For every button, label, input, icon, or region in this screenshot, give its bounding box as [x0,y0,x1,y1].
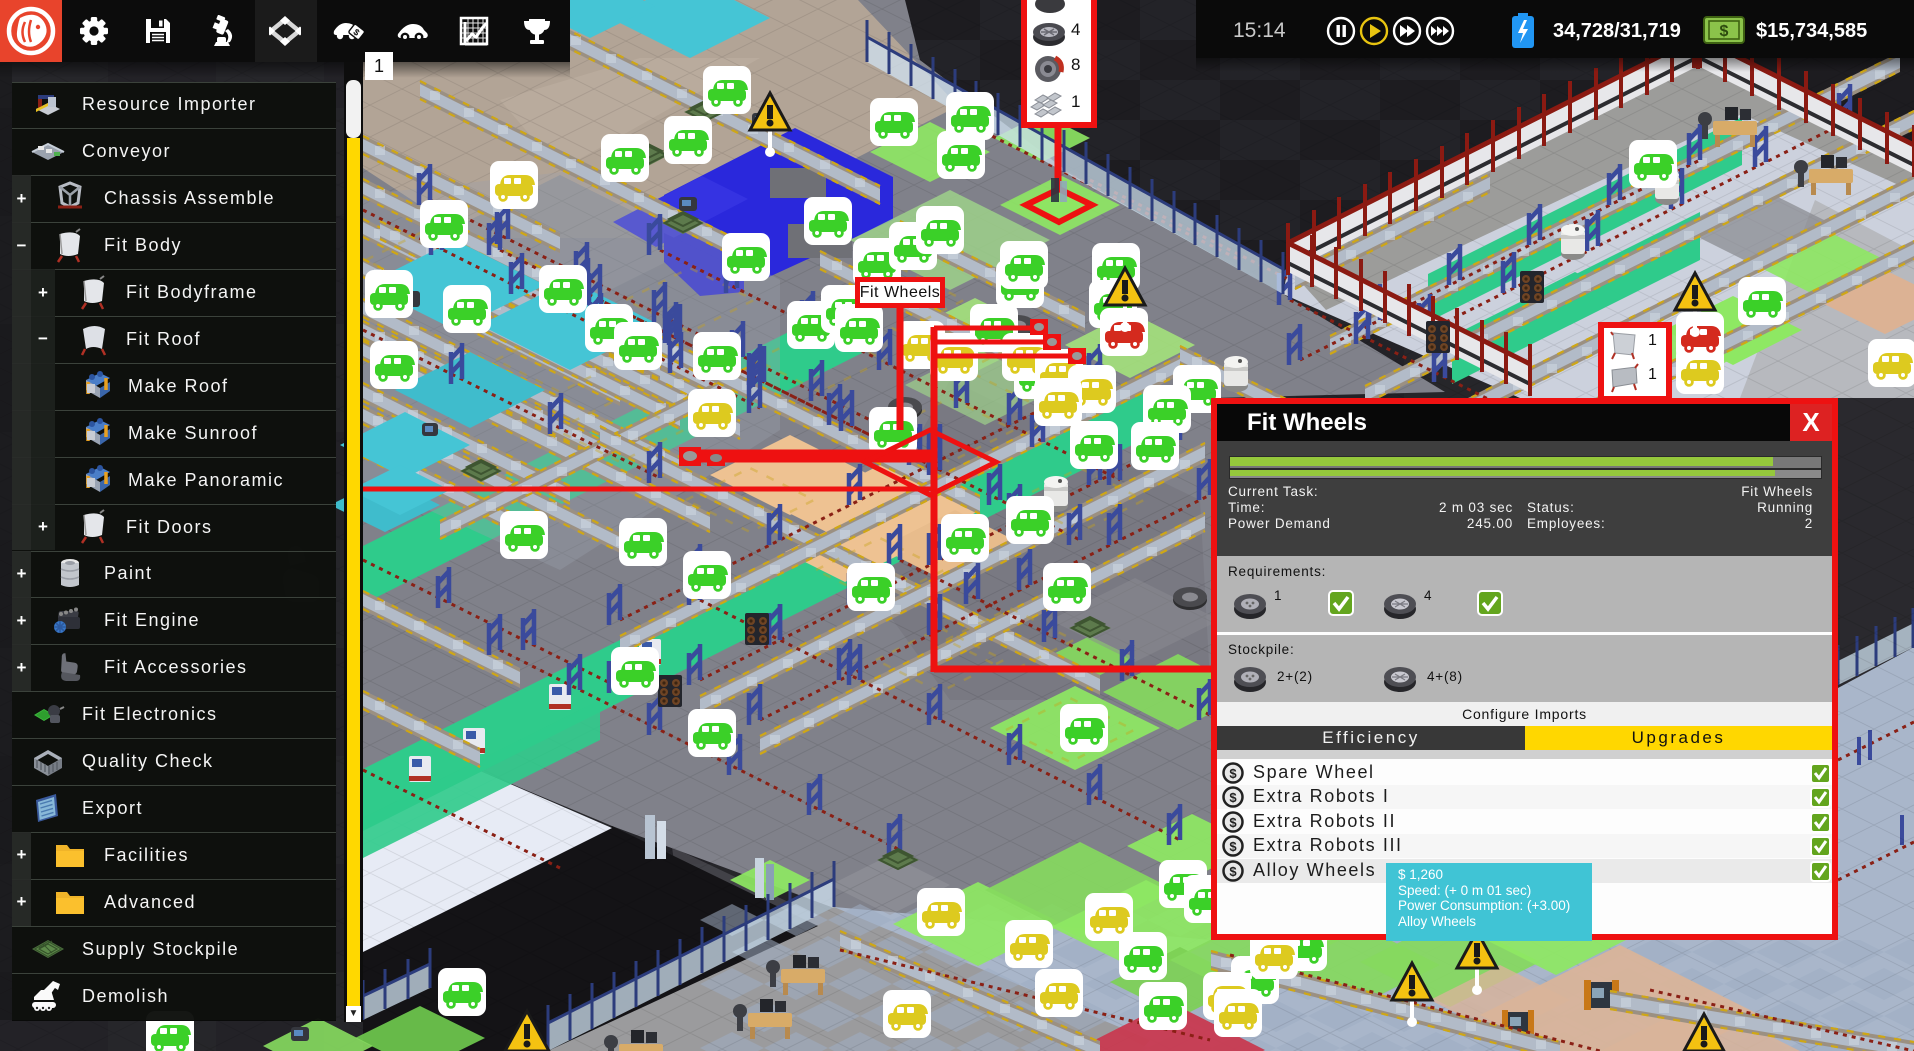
svg-text:$: $ [1720,23,1729,40]
svg-text:$: $ [1229,815,1237,830]
svg-text:$: $ [1229,790,1237,805]
svg-text:$: $ [1229,766,1237,781]
svg-text:$: $ [1229,839,1237,854]
svg-text:$: $ [1229,864,1237,879]
